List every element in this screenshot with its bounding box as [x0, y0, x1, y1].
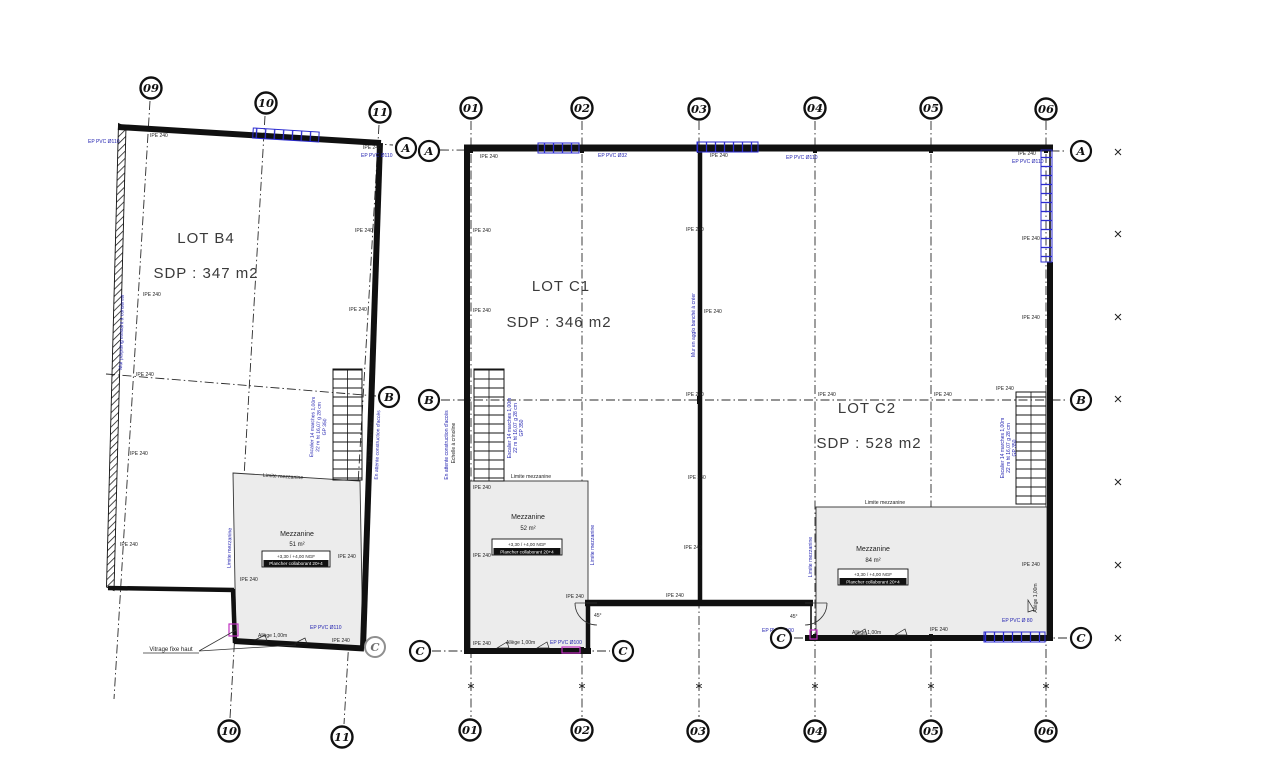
grid-bubble-06-top: 06: [1036, 99, 1057, 120]
grid-bubble-05-bottom: 05: [921, 721, 942, 742]
ipe-tag: IPE 240: [473, 641, 491, 647]
grid-bubble-label: C: [415, 644, 425, 658]
grid-bubble-label: B: [423, 393, 434, 407]
lot-c2-name: LOT C2: [838, 400, 896, 417]
ladder-c1-note: Echelle à crinoline: [451, 422, 457, 463]
mezzanine-c2-area: 84 m²: [865, 558, 880, 564]
limite-c2-left: Limite mezzanine: [808, 537, 814, 577]
limite-b4-left: Limite mezzanine: [226, 528, 233, 569]
grid-bubble-label: A: [1076, 144, 1086, 158]
grid-bubble-label: A: [424, 144, 434, 158]
ipe-tag: IPE 240: [688, 475, 706, 481]
grid-bubble-label: 11: [334, 730, 350, 744]
ipe-tag: IPE 240: [686, 392, 704, 398]
mezzanine-c1-floor: Plancher collaborant 20+4: [500, 550, 554, 555]
grid-bubble-label: 10: [258, 96, 274, 110]
mezzanine-c1-area: [470, 481, 588, 651]
glazing-right-wall: [1041, 150, 1052, 262]
stair-b4: [333, 369, 362, 480]
ipe-tag: IPE 240: [686, 227, 704, 233]
paper-background: [0, 0, 1280, 780]
grid-bubble-A-right: A: [1071, 141, 1091, 161]
ipe-tag: IPE 240: [120, 542, 138, 548]
wall-c-middle-note: Mur en agglo banché à créer: [691, 293, 697, 357]
door-angle-tag: 45°: [594, 613, 602, 619]
grid-bubble-label: 03: [691, 102, 707, 116]
ipe-tag: IPE 240: [684, 545, 702, 551]
ep-pvc-tag: EP PVC Ø110: [310, 625, 342, 631]
grid-bubble-A-b4: A: [396, 138, 416, 158]
grid-bubble-label: 05: [923, 101, 939, 115]
plan-canvas: LOT B4 SDP : 347 m2 LOT C1 SDP : 346 m2 …: [0, 0, 1280, 780]
mezzanine-b4-area: 51 m²: [289, 542, 304, 548]
limite-c1-right: Limite mezzanine: [590, 525, 596, 565]
mezzanine-c1-title: Mezzanine: [511, 514, 545, 521]
limite-c2-top: Limite mezzanine: [865, 500, 905, 506]
lot-b4-name: LOT B4: [177, 230, 234, 247]
ipe-tag: IPE 240: [480, 154, 498, 160]
grid-bubble-11-bottom: 11: [332, 727, 353, 748]
mezzanine-b4-title: Mezzanine: [280, 531, 314, 538]
grid-bubble-label: 03: [690, 724, 706, 738]
mezzanine-c2-floor: Plancher collaborant 20+4: [846, 580, 900, 585]
grid-bubble-C-left2: C: [613, 641, 633, 661]
grid-bubble-04-top: 04: [805, 98, 826, 119]
grid-bubble-05-top: 05: [921, 98, 942, 119]
lot-c2-sdp: SDP : 528 m2: [816, 435, 921, 452]
grid-bubble-label: B: [383, 390, 394, 404]
grid-bubble-03-bottom: 03: [688, 721, 709, 742]
glazing-c2-top: [697, 142, 758, 152]
grid-bubble-10-top: 10: [256, 93, 277, 114]
stair-c2-note-3: GP 350: [1012, 439, 1018, 456]
access-c1-note: En attente construction d'accès: [444, 410, 450, 480]
ipe-tag: IPE 240: [1018, 151, 1036, 157]
mezzanine-c1-area: 52 m²: [520, 526, 535, 532]
ipe-tag: IPE 240: [666, 593, 684, 599]
ipe-tag: IPE 240: [710, 153, 728, 159]
grid-bubble-label: 01: [462, 723, 478, 737]
stair-b4-note-3: GP 350: [322, 418, 329, 435]
ipe-tag: IPE 240: [1022, 315, 1040, 321]
ipe-tag: IPE 240: [934, 392, 952, 398]
grid-bubble-label: C: [370, 640, 380, 654]
ipe-tag: IPE 240: [332, 638, 350, 644]
ipe-tag: IPE 240: [240, 577, 258, 583]
grid-bubble-C-left1: C: [410, 641, 430, 661]
glazing-c2-bottom: [984, 632, 1045, 642]
grid-bubble-label: 09: [143, 81, 159, 95]
ep-pvc-tag: EP PVC Ø110: [786, 155, 818, 161]
grid-bubble-label: C: [1076, 631, 1086, 645]
ipe-tag: IPE 240: [1022, 236, 1040, 242]
door-angle-tag: 45°: [790, 614, 798, 620]
glazing-c1-top: [538, 143, 579, 153]
ipe-tag: IPE 240: [996, 386, 1014, 392]
grid-bubble-label: C: [618, 644, 628, 658]
ipe-tag: IPE 240: [818, 392, 836, 398]
limite-c1-top: Limite mezzanine: [511, 474, 551, 480]
ipe-tag: IPE 240: [349, 307, 367, 313]
grid-bubble-10-bottom: 10: [219, 721, 240, 742]
mezzanine-b4-floor: Plancher collaborant 20+4: [269, 561, 323, 566]
ep-pvc-tag: EP PVC Ø 80: [1002, 618, 1033, 624]
grid-bubble-label: 01: [463, 101, 479, 115]
vitrage-note: Vitrage fixe haut: [149, 647, 193, 653]
grid-bubble-label: C: [776, 631, 786, 645]
ipe-tag: IPE 240: [136, 372, 154, 378]
grid-bubble-02-top: 02: [572, 98, 593, 119]
lot-b4-sdp: SDP : 347 m2: [153, 265, 258, 282]
ep-pvc-tag: EP PVC Ø100: [550, 640, 582, 646]
ep-pvc-tag: EP PVC Ø110: [88, 139, 120, 145]
grid-bubble-B-right: B: [1071, 390, 1091, 410]
mezzanine-c2-title: Mezzanine: [856, 546, 890, 553]
grid-bubble-C-right2: C: [1071, 628, 1091, 648]
ep-pvc-tag: EP PVC Ø110: [361, 153, 393, 159]
ipe-tag: IPE 240: [355, 228, 373, 234]
ipe-tag: IPE 240: [704, 309, 722, 315]
ipe-tag: IPE 240: [473, 485, 491, 491]
mezzanine-c2-level: +3,30 / +4,00 NGF: [854, 572, 892, 577]
floor-plan-svg: LOT B4 SDP : 347 m2 LOT C1 SDP : 346 m2 …: [0, 0, 1280, 780]
grid-bubble-B-b4: B: [379, 387, 399, 407]
ipe-tag: IPE 240: [1022, 562, 1040, 568]
ipe-tag: IPE 240: [363, 145, 381, 151]
ep-pvc-tag: EP PVC Ø32: [598, 153, 627, 159]
grid-bubble-04-bottom: 04: [805, 721, 826, 742]
grid-bubble-01-bottom: 01: [460, 720, 481, 741]
lot-c1-name: LOT C1: [532, 278, 590, 295]
allege-tag: Allège 1,00m: [506, 640, 535, 646]
ep-pvc-tag: EP PVC Ø110: [1012, 159, 1044, 165]
grid-bubble-label: 05: [923, 724, 939, 738]
grid-bubble-02-bottom: 02: [572, 720, 593, 741]
grid-bubble-label: A: [401, 141, 411, 155]
ipe-tag: IPE 240: [130, 451, 148, 457]
grid-bubble-B-left: B: [419, 390, 439, 410]
stair-c1-note-3: GP 350: [519, 419, 525, 436]
grid-bubble-09-top: 09: [141, 78, 162, 99]
allege-right-wall: Allège 1,00m: [1033, 583, 1039, 612]
ipe-tag: IPE 240: [143, 292, 161, 298]
ipe-tag: IPE 240: [566, 594, 584, 600]
grid-bubble-label: 06: [1038, 724, 1054, 738]
mezzanine-c1-level: +3,30 / +4,00 NGF: [508, 542, 546, 547]
grid-bubble-11-top: 11: [370, 102, 391, 123]
grid-bubble-C-right1: C: [771, 628, 791, 648]
mezzanine-b4-level: +3,30 / +4,00 NGF: [277, 554, 315, 559]
grid-bubble-label: B: [1075, 393, 1086, 407]
grid-bubble-label: 02: [574, 101, 590, 115]
grid-bubble-label: 06: [1038, 102, 1054, 116]
grid-bubble-label: 11: [372, 105, 388, 119]
ipe-tag: IPE 240: [150, 133, 168, 139]
grid-bubble-06-bottom: 06: [1036, 721, 1057, 742]
grid-bubble-label: 02: [574, 723, 590, 737]
grid-bubble-C-b4: C: [365, 637, 385, 657]
stair-c2: [1016, 392, 1046, 504]
grid-bubble-01-top: 01: [461, 98, 482, 119]
ipe-tag: IPE 240: [338, 554, 356, 560]
grid-bubble-03-top: 03: [689, 99, 710, 120]
grid-bubble-label: 04: [807, 724, 823, 738]
grid-bubble-A-left: A: [419, 141, 439, 161]
lot-c1-sdp: SDP : 346 m2: [506, 314, 611, 331]
ipe-tag: IPE 240: [473, 228, 491, 234]
grid-bubble-label: 04: [807, 101, 823, 115]
ipe-tag: IPE 240: [473, 553, 491, 559]
ipe-tag: IPE 240: [930, 627, 948, 633]
grid-bubble-label: 10: [221, 724, 237, 738]
ipe-tag: IPE 240: [473, 308, 491, 314]
stair-c1: [474, 369, 504, 481]
